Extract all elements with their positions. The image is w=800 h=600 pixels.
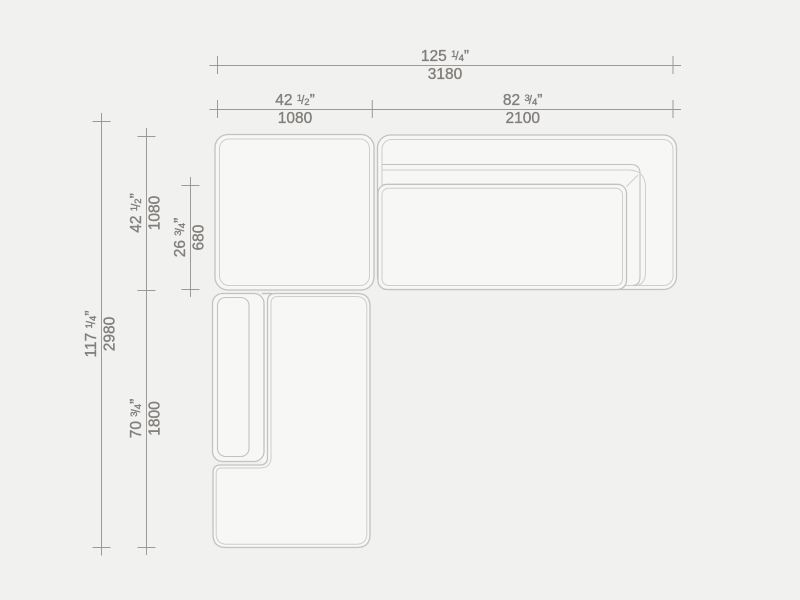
- svg-text:2100: 2100: [505, 110, 540, 127]
- svg-text:1080: 1080: [147, 195, 164, 230]
- svg-text:680: 680: [191, 224, 208, 250]
- svg-text:42 1/2”: 42 1/2”: [275, 92, 315, 109]
- svg-text:42 1/2”: 42 1/2”: [128, 193, 145, 233]
- svg-text:26 3/4”: 26 3/4”: [172, 218, 189, 258]
- svg-text:1080: 1080: [278, 110, 313, 127]
- svg-text:1800: 1800: [147, 401, 164, 436]
- svg-text:70 3/4”: 70 3/4”: [128, 399, 145, 439]
- svg-text:2980: 2980: [102, 316, 119, 351]
- svg-text:3180: 3180: [428, 66, 463, 83]
- svg-text:82 3/4”: 82 3/4”: [503, 92, 543, 109]
